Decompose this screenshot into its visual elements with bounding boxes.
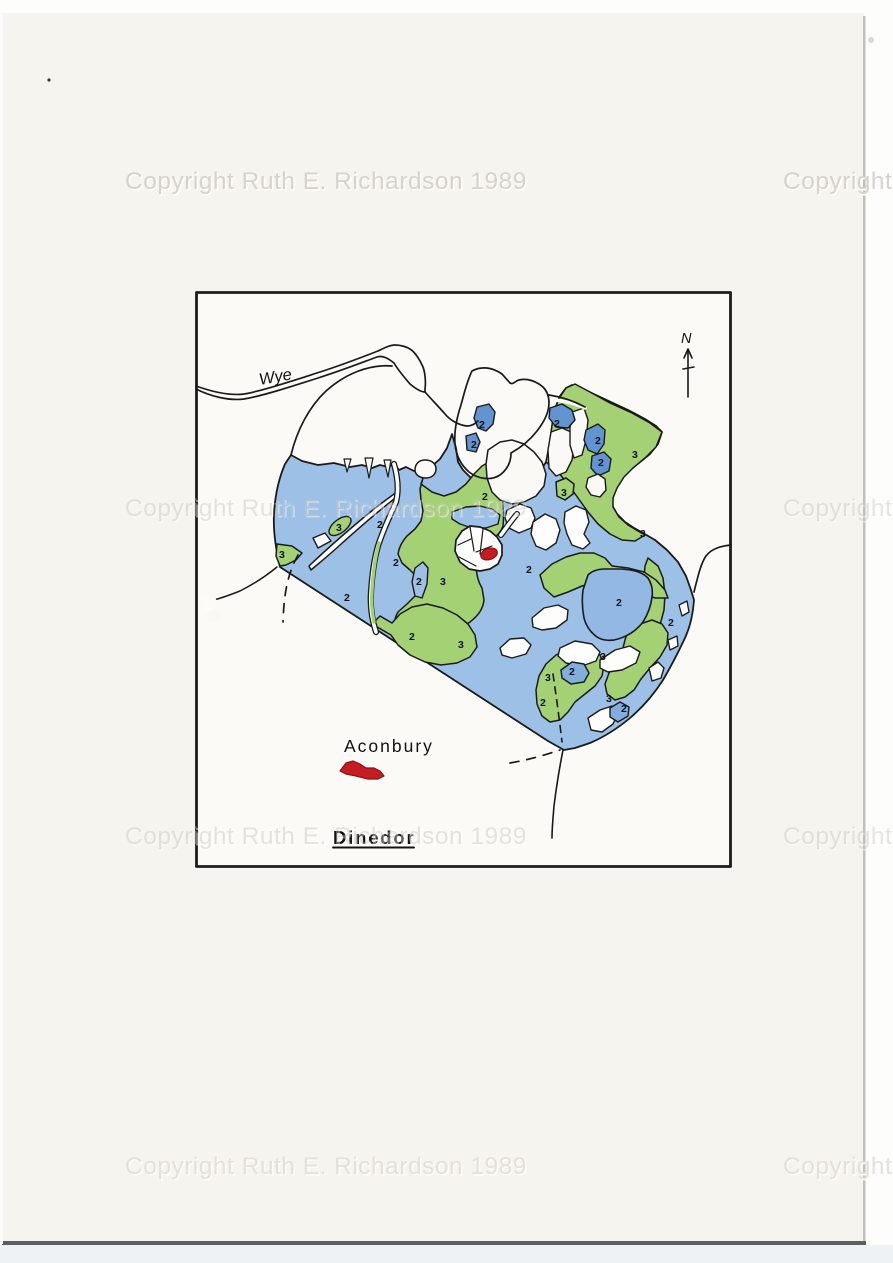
svg-text:N: N (681, 331, 692, 347)
svg-text:Copyright: Copyright (783, 1153, 892, 1180)
svg-text:3: 3 (458, 639, 464, 651)
svg-text:Copyright Ruth E. Richardson 1: Copyright Ruth E. Richardson 1989 (125, 1153, 527, 1180)
svg-text:3: 3 (440, 576, 446, 588)
svg-text:3: 3 (600, 651, 606, 663)
svg-text:2: 2 (554, 418, 560, 430)
svg-text:2: 2 (598, 457, 604, 469)
svg-text:3: 3 (545, 672, 551, 684)
svg-text:Aconbury: Aconbury (344, 736, 434, 756)
svg-text:2: 2 (540, 697, 546, 709)
svg-text:2: 2 (569, 666, 575, 678)
svg-text:2: 2 (416, 576, 422, 588)
svg-text:2: 2 (393, 557, 399, 569)
svg-text:2: 2 (409, 631, 415, 643)
svg-text:3: 3 (336, 522, 342, 534)
svg-text:2: 2 (526, 564, 532, 576)
svg-text:Copyright: Copyright (783, 823, 892, 850)
svg-text:2: 2 (595, 435, 601, 447)
svg-text:3: 3 (279, 549, 285, 561)
svg-text:2: 2 (616, 597, 622, 609)
svg-text:3: 3 (632, 449, 638, 461)
svg-text:3: 3 (640, 528, 646, 540)
svg-text:Copyright Ruth E. Richardson 1: Copyright Ruth E. Richardson 1989 (125, 168, 527, 195)
svg-text:2: 2 (479, 419, 485, 431)
svg-text:2: 2 (621, 703, 627, 715)
svg-text:3: 3 (561, 487, 567, 499)
svg-text:2: 2 (344, 592, 350, 604)
svg-text:3: 3 (606, 693, 612, 705)
svg-text:Copyright Ruth E. Richardson 1: Copyright Ruth E. Richardson 1989 (125, 495, 527, 522)
svg-text:2: 2 (471, 439, 477, 451)
svg-text:Copyright: Copyright (783, 168, 892, 195)
svg-text:Copyright Ruth E. Richardson 1: Copyright Ruth E. Richardson 1989 (125, 823, 527, 850)
svg-text:2: 2 (668, 617, 674, 629)
svg-text:Copyright: Copyright (783, 495, 892, 522)
